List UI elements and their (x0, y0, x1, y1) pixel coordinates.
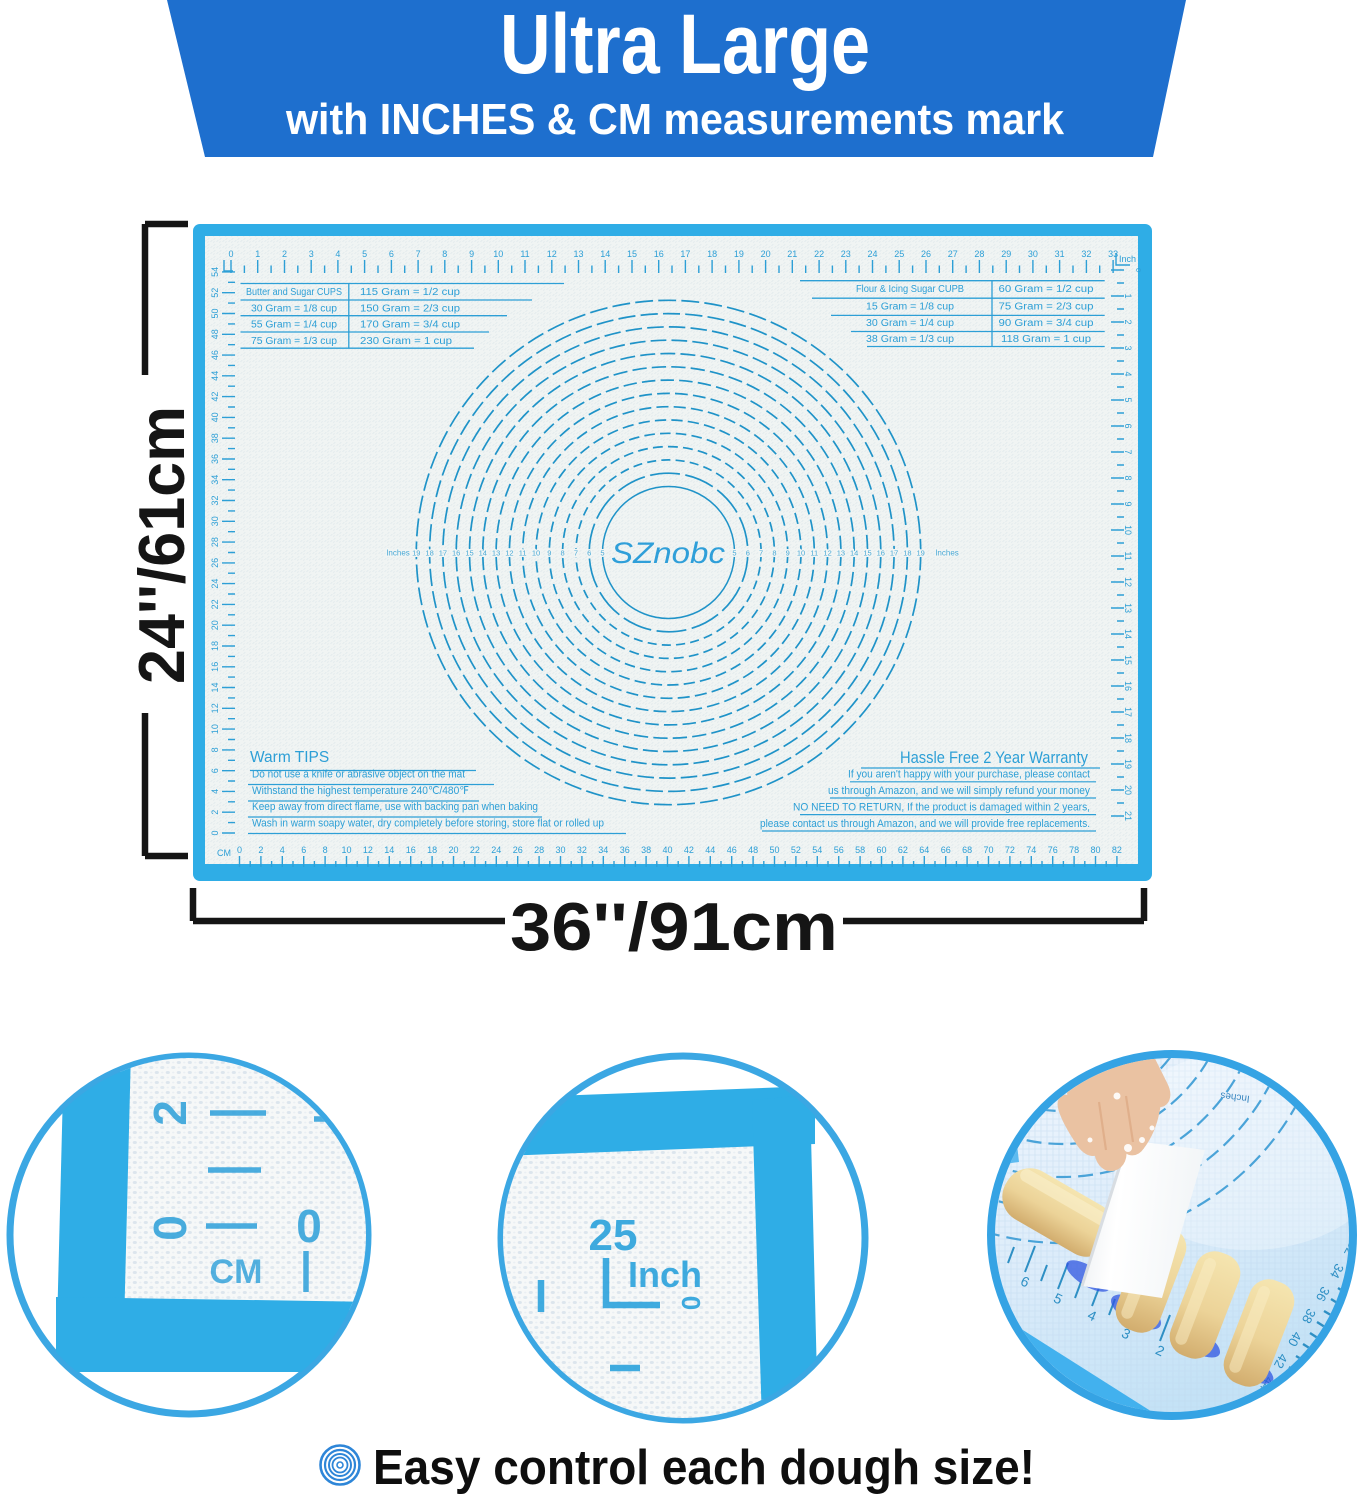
svg-text:Withstand the highest temperat: Withstand the highest temperature 240℃/4… (252, 785, 469, 797)
svg-text:13: 13 (573, 249, 583, 259)
svg-text:11: 11 (520, 249, 529, 259)
svg-text:21: 21 (787, 249, 797, 259)
svg-text:52: 52 (210, 288, 220, 298)
svg-text:16: 16 (452, 549, 460, 558)
svg-text:15: 15 (627, 249, 637, 259)
svg-text:48: 48 (210, 329, 220, 339)
svg-text:44: 44 (210, 371, 220, 381)
svg-text:7: 7 (759, 549, 763, 558)
svg-text:55 Gram = 1/4 cup: 55 Gram = 1/4 cup (251, 320, 338, 331)
svg-text:0: 0 (228, 249, 233, 259)
svg-text:8: 8 (1123, 475, 1133, 480)
svg-text:48: 48 (748, 845, 758, 855)
svg-text:16: 16 (1123, 681, 1133, 691)
svg-text:40: 40 (210, 412, 220, 422)
svg-text:14: 14 (384, 845, 394, 855)
svg-text:2: 2 (210, 810, 220, 815)
svg-text:0: 0 (1134, 268, 1143, 272)
svg-text:56: 56 (834, 845, 844, 855)
svg-text:17: 17 (680, 249, 690, 259)
svg-text:36''/91cm: 36''/91cm (510, 889, 838, 965)
svg-text:18: 18 (707, 249, 717, 259)
svg-text:16: 16 (877, 549, 885, 558)
svg-text:Inch: Inch (628, 1254, 702, 1295)
svg-text:22: 22 (814, 249, 824, 259)
svg-text:Flour & Icing Sugar CUPB: Flour & Icing Sugar CUPB (856, 284, 964, 295)
svg-text:32: 32 (1081, 249, 1091, 259)
svg-text:20: 20 (761, 249, 771, 259)
svg-text:12: 12 (505, 549, 513, 558)
svg-text:230 Gram = 1 cup: 230 Gram = 1 cup (360, 336, 453, 347)
svg-text:32: 32 (210, 495, 220, 505)
svg-text:23: 23 (841, 249, 851, 259)
svg-text:7: 7 (1123, 449, 1133, 454)
svg-text:18: 18 (210, 641, 220, 651)
svg-text:8: 8 (561, 549, 565, 558)
svg-text:75 Gram = 1/3 cup: 75 Gram = 1/3 cup (251, 336, 338, 347)
svg-text:46: 46 (210, 350, 220, 360)
svg-text:4: 4 (280, 845, 285, 855)
svg-text:0: 0 (210, 830, 220, 835)
svg-text:6: 6 (746, 549, 750, 558)
svg-text:Keep away from direct flame, u: Keep away from direct flame, use with ba… (252, 801, 538, 813)
svg-text:24: 24 (491, 845, 501, 855)
svg-text:28: 28 (534, 845, 544, 855)
svg-text:90 Gram = 3/4 cup: 90 Gram = 3/4 cup (999, 318, 1095, 329)
svg-text:13: 13 (837, 549, 845, 558)
svg-text:72: 72 (1005, 845, 1015, 855)
svg-text:10: 10 (493, 249, 503, 259)
svg-text:9: 9 (469, 249, 474, 259)
svg-text:22: 22 (470, 845, 480, 855)
svg-text:54: 54 (812, 845, 822, 855)
svg-text:18: 18 (427, 845, 437, 855)
svg-text:6: 6 (587, 549, 591, 558)
svg-text:10: 10 (210, 724, 220, 734)
svg-text:26: 26 (210, 558, 220, 568)
svg-text:5: 5 (362, 249, 367, 259)
svg-text:Inches: Inches (935, 549, 959, 558)
svg-text:9: 9 (1123, 501, 1133, 506)
svg-text:42: 42 (210, 392, 220, 402)
svg-text:4: 4 (335, 249, 340, 259)
svg-text:Inch: Inch (1119, 254, 1136, 264)
svg-text:17: 17 (439, 549, 447, 558)
svg-text:75 Gram = 2/3 cup: 75 Gram = 2/3 cup (999, 302, 1095, 313)
svg-text:5: 5 (1123, 397, 1133, 402)
svg-text:30 Gram = 1/4 cup: 30 Gram = 1/4 cup (866, 318, 955, 329)
svg-text:34: 34 (210, 475, 220, 485)
svg-text:19: 19 (917, 549, 925, 558)
svg-text:12: 12 (823, 549, 831, 558)
svg-text:NO NEED TO RETURN, If the prod: NO NEED TO RETURN, If the product is dam… (793, 802, 1090, 814)
svg-text:2: 2 (1123, 319, 1133, 324)
svg-text:17: 17 (890, 549, 898, 558)
svg-text:CM: CM (217, 848, 231, 858)
svg-text:Ultra Large: Ultra Large (500, 0, 870, 91)
svg-text:1: 1 (255, 249, 260, 259)
svg-text:1: 1 (1123, 293, 1133, 298)
svg-text:31: 31 (1055, 249, 1065, 259)
svg-text:25: 25 (589, 1211, 638, 1260)
svg-text:36: 36 (620, 845, 630, 855)
svg-text:7: 7 (574, 549, 578, 558)
svg-text:3: 3 (1123, 345, 1133, 350)
svg-text:14: 14 (850, 549, 858, 558)
svg-text:10: 10 (341, 845, 351, 855)
svg-text:170 Gram = 3/4 cup: 170 Gram = 3/4 cup (360, 320, 461, 331)
svg-text:150 Gram = 2/3 cup: 150 Gram = 2/3 cup (360, 303, 461, 314)
svg-text:50: 50 (769, 845, 779, 855)
svg-text:6: 6 (389, 249, 394, 259)
svg-text:Warm TIPS: Warm TIPS (250, 749, 329, 766)
svg-text:10: 10 (532, 549, 540, 558)
svg-text:6: 6 (1123, 423, 1133, 428)
svg-text:2: 2 (258, 845, 263, 855)
svg-text:8: 8 (772, 549, 776, 558)
svg-text:6: 6 (210, 768, 220, 773)
svg-text:8: 8 (323, 845, 328, 855)
svg-text:2: 2 (282, 249, 287, 259)
svg-text:16: 16 (406, 845, 416, 855)
svg-text:27: 27 (948, 249, 958, 259)
svg-text:with INCHES & CM measurements: with INCHES & CM measurements mark (285, 95, 1064, 144)
svg-text:12: 12 (210, 703, 220, 713)
svg-text:38 Gram = 1/3 cup: 38 Gram = 1/3 cup (866, 334, 955, 345)
svg-text:4: 4 (210, 789, 220, 794)
svg-text:60: 60 (876, 845, 886, 855)
svg-text:34: 34 (598, 845, 608, 855)
svg-text:80: 80 (1090, 845, 1100, 855)
svg-text:30: 30 (1028, 249, 1038, 259)
svg-text:26: 26 (921, 249, 931, 259)
svg-text:30 Gram = 1/8 cup: 30 Gram = 1/8 cup (251, 303, 338, 314)
svg-text:36: 36 (210, 454, 220, 464)
svg-text:4: 4 (1123, 371, 1133, 376)
svg-text:12: 12 (363, 845, 373, 855)
svg-text:26: 26 (513, 845, 523, 855)
svg-text:70: 70 (983, 845, 993, 855)
svg-text:28: 28 (974, 249, 984, 259)
svg-text:15: 15 (863, 549, 871, 558)
svg-text:22: 22 (210, 599, 220, 609)
svg-text:60 Gram = 1/2 cup: 60 Gram = 1/2 cup (999, 284, 1095, 295)
svg-text:20: 20 (210, 620, 220, 630)
svg-text:24''/61cm: 24''/61cm (125, 406, 198, 684)
svg-text:44: 44 (705, 845, 715, 855)
svg-text:32: 32 (577, 845, 587, 855)
svg-text:54: 54 (210, 267, 220, 277)
svg-text:15: 15 (1123, 655, 1133, 665)
svg-text:Inches: Inches (386, 549, 410, 558)
svg-text:3: 3 (309, 249, 314, 259)
svg-text:5: 5 (732, 549, 736, 558)
svg-text:If you aren't happy with your: If you aren't happy with your purchase, … (848, 769, 1090, 781)
svg-text:74: 74 (1026, 845, 1036, 855)
svg-text:10: 10 (797, 549, 805, 558)
svg-text:78: 78 (1069, 845, 1079, 855)
svg-text:13: 13 (492, 549, 500, 558)
svg-text:2: 2 (144, 1100, 196, 1126)
svg-text:7: 7 (416, 249, 421, 259)
svg-text:Butter and Sugar CUPS: Butter and Sugar CUPS (246, 287, 342, 298)
svg-text:14: 14 (600, 249, 610, 259)
svg-text:16: 16 (654, 249, 664, 259)
svg-text:12: 12 (1123, 577, 1133, 587)
svg-text:9: 9 (786, 549, 790, 558)
svg-text:11: 11 (810, 549, 818, 558)
svg-text:25: 25 (894, 249, 904, 259)
svg-text:24: 24 (867, 249, 877, 259)
svg-text:21: 21 (1123, 811, 1133, 821)
svg-text:Easy control each dough size!: Easy control each dough size! (373, 1441, 1035, 1495)
svg-text:8: 8 (210, 747, 220, 752)
svg-text:Wash in warm soapy water, dry: Wash in warm soapy water, dry completely… (252, 818, 604, 830)
svg-text:115 Gram = 1/2 cup: 115 Gram = 1/2 cup (360, 287, 461, 298)
svg-text:17: 17 (1123, 707, 1133, 717)
svg-text:15 Gram = 1/8 cup: 15 Gram = 1/8 cup (866, 302, 955, 313)
svg-text:10: 10 (1123, 525, 1133, 535)
svg-text:5: 5 (600, 549, 604, 558)
svg-text:18: 18 (425, 549, 433, 558)
svg-text:12: 12 (547, 249, 557, 259)
svg-text:38: 38 (641, 845, 651, 855)
svg-text:18: 18 (903, 549, 911, 558)
svg-text:11: 11 (1123, 551, 1133, 560)
svg-text:19: 19 (1123, 759, 1133, 769)
svg-text:68: 68 (962, 845, 972, 855)
svg-text:us through Amazon, and we wil: us through Amazon, and we will simply re… (828, 785, 1090, 797)
svg-text:15: 15 (465, 549, 473, 558)
svg-text:24: 24 (210, 579, 220, 589)
svg-text:82: 82 (1112, 845, 1122, 855)
svg-text:28: 28 (210, 537, 220, 547)
svg-text:16: 16 (210, 662, 220, 672)
svg-text:14: 14 (1123, 629, 1133, 639)
svg-text:19: 19 (734, 249, 744, 259)
svg-text:14: 14 (479, 549, 487, 558)
svg-text:20: 20 (448, 845, 458, 855)
svg-text:20: 20 (1123, 785, 1133, 795)
svg-text:9: 9 (547, 549, 551, 558)
svg-text:0: 0 (296, 1200, 322, 1252)
svg-text:64: 64 (919, 845, 929, 855)
svg-text:CM: CM (210, 1253, 263, 1291)
svg-text:66: 66 (941, 845, 951, 855)
svg-text:please contact us through Amaz: please contact us through Amazon, and we… (760, 818, 1090, 830)
svg-text:50: 50 (210, 308, 220, 318)
svg-text:18: 18 (1123, 733, 1133, 743)
svg-text:29: 29 (1001, 249, 1011, 259)
svg-text:19: 19 (412, 549, 420, 558)
svg-text:30: 30 (555, 845, 565, 855)
svg-text:76: 76 (1048, 845, 1058, 855)
svg-text:58: 58 (855, 845, 865, 855)
svg-text:13: 13 (1123, 603, 1133, 613)
svg-text:SZnobc: SZnobc (611, 537, 725, 570)
svg-text:40: 40 (662, 845, 672, 855)
svg-text:46: 46 (727, 845, 737, 855)
svg-text:14: 14 (210, 682, 220, 692)
svg-text:42: 42 (684, 845, 694, 855)
svg-text:38: 38 (210, 433, 220, 443)
svg-text:8: 8 (442, 249, 447, 259)
svg-text:0: 0 (676, 1296, 706, 1310)
svg-text:62: 62 (898, 845, 908, 855)
svg-text:0: 0 (237, 845, 242, 855)
svg-text:52: 52 (791, 845, 801, 855)
svg-text:118 Gram = 1 cup: 118 Gram = 1 cup (1001, 334, 1092, 345)
svg-text:6: 6 (301, 845, 306, 855)
svg-text:0: 0 (144, 1215, 196, 1241)
svg-text:30: 30 (210, 516, 220, 526)
svg-text:11: 11 (519, 549, 527, 558)
svg-text:Hassle Free 2 Year Warranty: Hassle Free 2 Year Warranty (900, 749, 1089, 767)
